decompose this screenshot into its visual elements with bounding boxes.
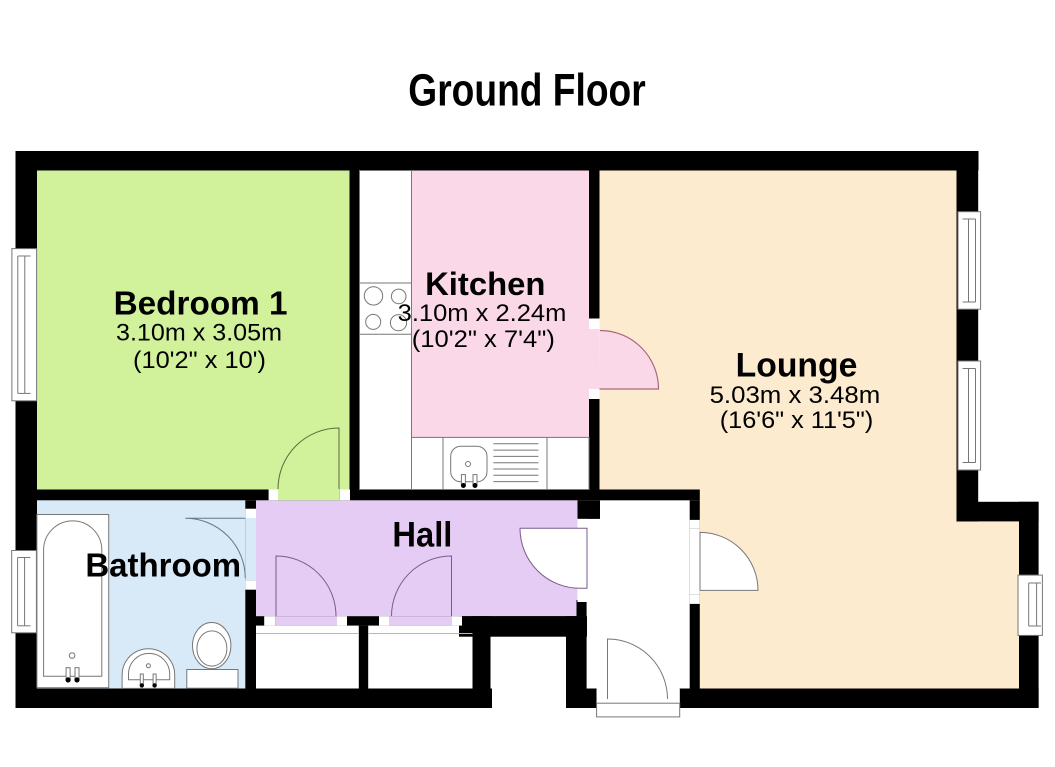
- svg-text:(10'2" x 10'): (10'2" x 10'): [133, 347, 266, 374]
- svg-text:(10'2" x 7'4"): (10'2" x 7'4"): [412, 326, 555, 353]
- svg-text:Bedroom 1: Bedroom 1: [114, 285, 288, 322]
- svg-text:Hall: Hall: [392, 516, 452, 555]
- svg-text:Ground Floor: Ground Floor: [408, 65, 645, 116]
- svg-text:(16'6" x 11'5"): (16'6" x 11'5"): [720, 407, 874, 434]
- svg-text:5.03m x 3.48m: 5.03m x 3.48m: [710, 382, 881, 409]
- svg-text:3.10m x 2.24m: 3.10m x 2.24m: [398, 300, 567, 327]
- svg-text:Lounge: Lounge: [736, 347, 858, 385]
- svg-text:Bathroom: Bathroom: [85, 547, 241, 584]
- svg-text:3.10m x 3.05m: 3.10m x 3.05m: [116, 320, 282, 347]
- svg-text:Kitchen: Kitchen: [425, 266, 545, 302]
